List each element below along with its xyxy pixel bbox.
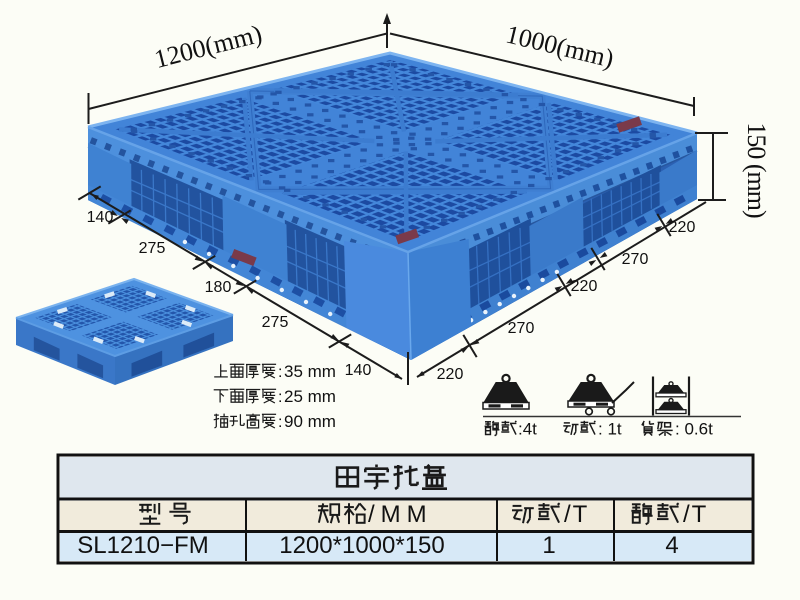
svg-text:90 mm: 90 mm xyxy=(284,412,336,431)
svg-text:220: 220 xyxy=(571,278,598,295)
svg-text:1200(mm): 1200(mm) xyxy=(151,19,265,74)
svg-text:25 mm: 25 mm xyxy=(284,387,336,406)
svg-text:275: 275 xyxy=(262,314,289,331)
svg-text:/T: /T xyxy=(564,501,589,528)
svg-text:35 mm: 35 mm xyxy=(284,362,336,381)
svg-text:: 1t: : 1t xyxy=(598,420,622,439)
svg-text:/T: /T xyxy=(683,501,708,528)
svg-text:220: 220 xyxy=(437,366,464,383)
svg-text:270: 270 xyxy=(508,320,535,337)
svg-text:140: 140 xyxy=(87,209,114,226)
svg-text:/MM: /MM xyxy=(368,501,433,528)
svg-text:180: 180 xyxy=(205,279,232,296)
svg-text::: : xyxy=(278,414,282,431)
svg-text:4: 4 xyxy=(665,532,678,559)
svg-text:1: 1 xyxy=(542,532,555,559)
svg-text:SL1210−FM: SL1210−FM xyxy=(77,532,208,559)
svg-text:270: 270 xyxy=(622,251,649,268)
svg-text::: : xyxy=(278,364,282,381)
svg-text:150 (mm): 150 (mm) xyxy=(742,122,771,218)
svg-text::: : xyxy=(278,389,282,406)
svg-text::4t: :4t xyxy=(518,420,537,439)
svg-text:140: 140 xyxy=(345,362,372,379)
svg-text:1200*1000*150: 1200*1000*150 xyxy=(279,532,445,559)
svg-text:275: 275 xyxy=(139,240,166,257)
svg-text:220: 220 xyxy=(669,219,696,236)
svg-text:: 0.6t: : 0.6t xyxy=(675,420,713,439)
